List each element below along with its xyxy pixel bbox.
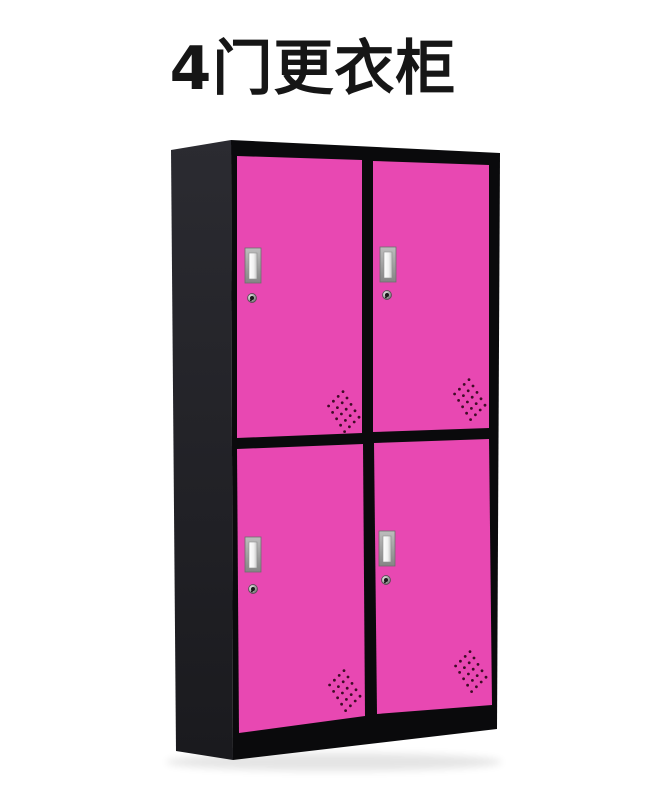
handle-top-left-icon xyxy=(245,248,261,283)
cabinet-side-panel xyxy=(171,140,233,760)
keyhole-bottom-right-icon xyxy=(382,576,391,585)
keyhole-top-right-icon xyxy=(383,291,392,300)
door-bottom-right xyxy=(374,439,492,714)
handle-bottom-right-icon xyxy=(379,531,395,566)
handle-bottom-left-icon xyxy=(245,537,261,572)
keyhole-bottom-left-icon xyxy=(249,585,258,594)
product-image-page: 4门更衣柜 xyxy=(0,0,650,790)
handle-top-right-icon xyxy=(380,247,396,282)
keyhole-top-left-icon xyxy=(248,294,257,303)
locker-cabinet-image xyxy=(0,0,650,790)
